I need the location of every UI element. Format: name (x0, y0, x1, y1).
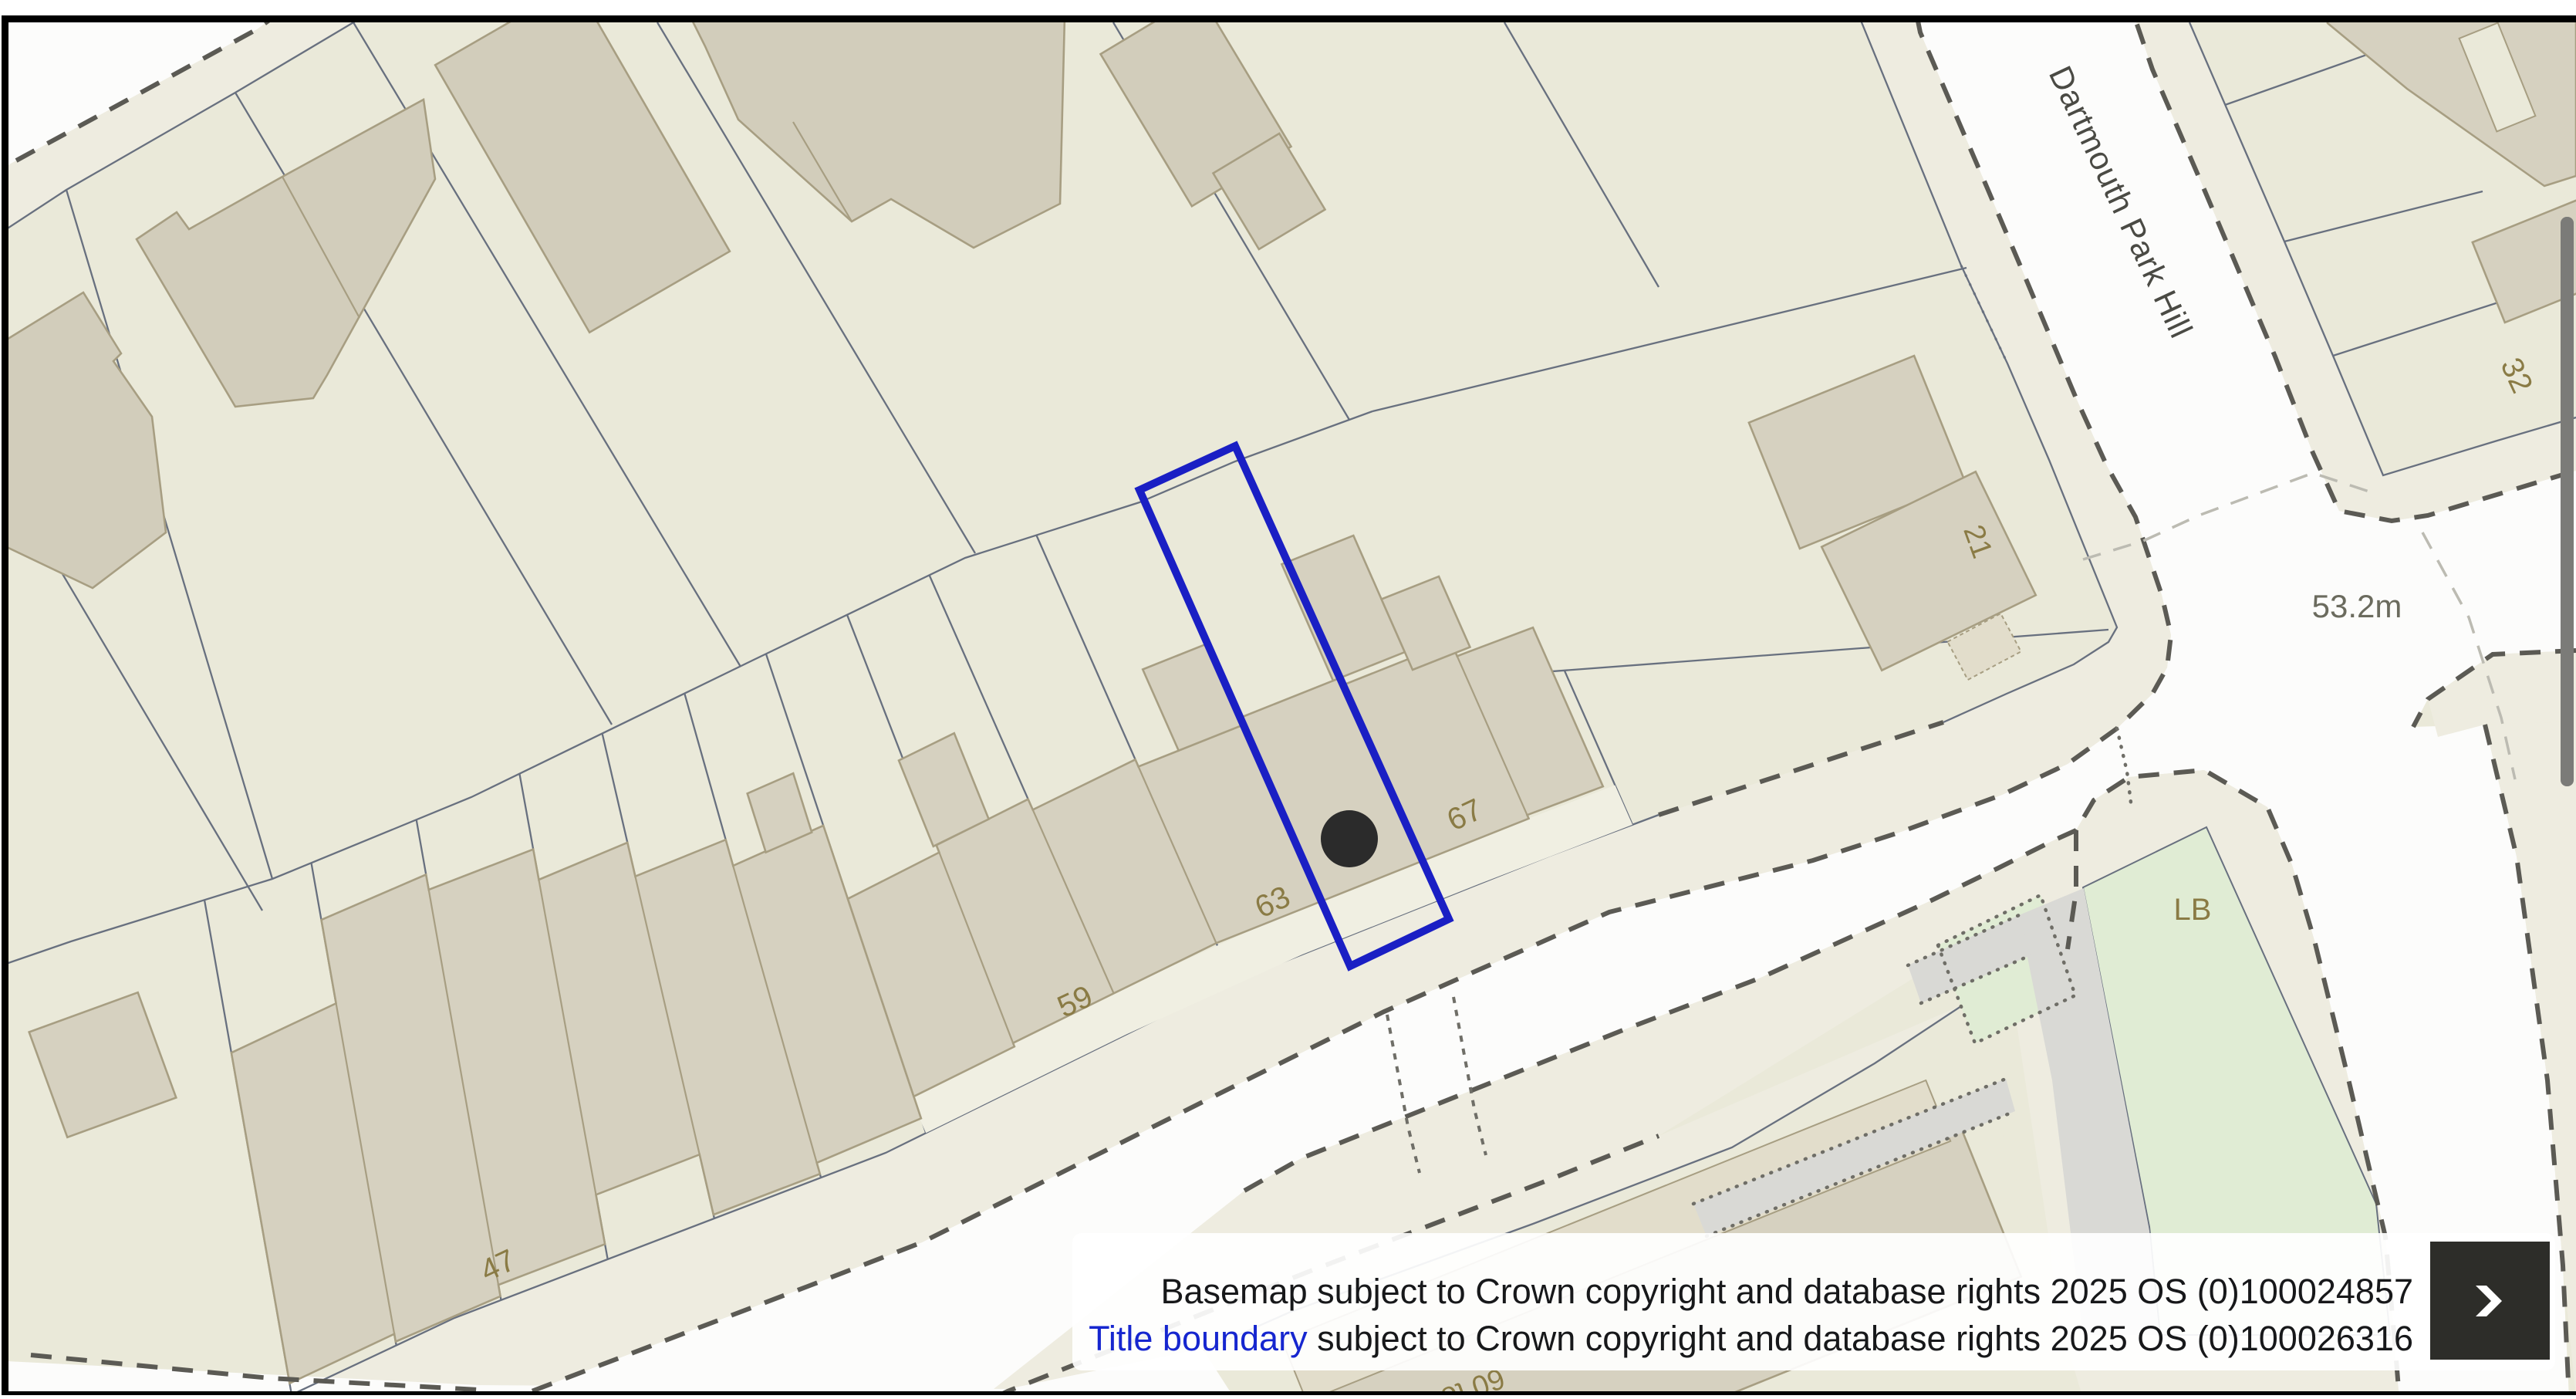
svg-text:53.2m: 53.2m (2312, 588, 2402, 624)
svg-text:LB: LB (2174, 893, 2212, 927)
svg-text:Basemap subject to Crown copyr: Basemap subject to Crown copyright and d… (1160, 1272, 2413, 1311)
svg-text:Title boundary subject to Crow: Title boundary subject to Crown copyrigh… (1089, 1319, 2413, 1358)
